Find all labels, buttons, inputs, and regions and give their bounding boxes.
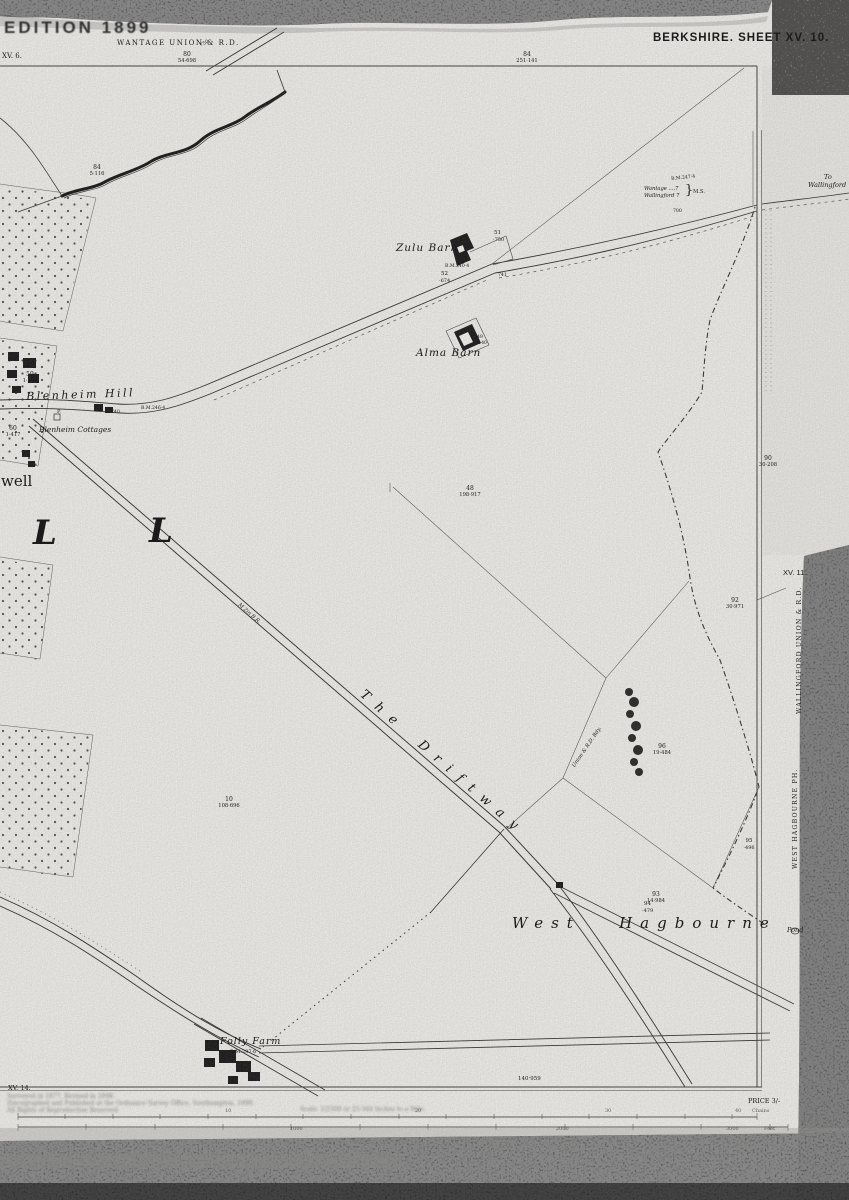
parcel-94-number: 94	[644, 902, 651, 908]
imprint-line-3: All Rights of Reproduction Reserved.	[7, 1108, 120, 1114]
parcel-52-number: 52	[441, 272, 448, 278]
west-hagbourne-ph-vertical: WEST HAGBOURNE PH.	[793, 768, 799, 869]
scale-feet-unit: Feet	[764, 1127, 775, 1132]
edition-label: EDITION 1899	[4, 19, 152, 36]
adjacent-sheet-xv11: XV. 11.	[783, 569, 806, 577]
wantage-union-label: WANTAGE UNION & R.D.	[117, 40, 240, 47]
parcel-95-number: 95	[746, 839, 753, 845]
scale-chains-40: 40	[735, 1109, 741, 1114]
parcel-51-number: 51	[494, 231, 501, 237]
pond-label: Pond	[787, 927, 803, 934]
blenheim-cottages-label: Blenheim Cottages	[39, 426, 111, 434]
scale-chains-unit: Chains	[752, 1109, 769, 1114]
bm-297-6: B.M.297·6	[230, 1050, 256, 1055]
milestone-label: M.S.	[693, 190, 705, 195]
parcel-49-area: ·140	[477, 342, 487, 346]
map-labels: EDITION 1899WANTAGE UNION & R.D.XV. 6.BE…	[0, 0, 849, 1200]
folly-farm-label: Folly Farm	[220, 1037, 281, 1047]
price-label: PRICE 3/-	[748, 1098, 780, 1105]
well-name-fragment: well	[1, 474, 32, 489]
scale-feet-1000: 1000	[290, 1127, 303, 1132]
scale-chains-30: 30	[605, 1109, 611, 1114]
to-wallingford-line2: Wallingford	[808, 182, 846, 189]
ms-destination-2: Wallingford 7	[644, 194, 679, 199]
parcel-84-area: 251·141	[516, 59, 537, 64]
boundary-annotation: Union & R.D. Bdy.	[572, 727, 603, 769]
pump-label: P.	[57, 410, 61, 415]
scale-chains-20: 20	[415, 1109, 421, 1114]
scale-feet-2000: 2000	[556, 1127, 569, 1132]
parcel-84w-area: 5·116	[90, 172, 105, 177]
level-700: 700	[673, 210, 682, 215]
adjacent-sheet-xv14: XV. 14.	[8, 1085, 31, 1092]
level-740: 740	[111, 411, 120, 416]
level-741: 741	[498, 274, 507, 279]
parcel-95-area: ·496	[743, 846, 754, 851]
parcel-10-area: 108·696	[218, 804, 239, 809]
bm-240-4: B.M.240·4	[445, 265, 469, 270]
parcel-48-area: 198·917	[459, 493, 480, 498]
acreage-total: 140·959	[518, 1077, 541, 1083]
driftway-label: T h e D r i f t w a y	[357, 688, 522, 834]
scale-chains-10: 10	[225, 1109, 231, 1114]
bridle-road-annotation: M 2in B.R.	[237, 603, 261, 625]
blenheim-hill-label: Blenheim Hill	[26, 387, 135, 402]
parcel-80-area: 54·698	[178, 59, 196, 64]
adjacent-sheet-xv6: XV. 6.	[2, 53, 22, 60]
parcel-51-area: ·750	[493, 238, 504, 243]
spot-height-750: 750	[200, 40, 210, 49]
scanned-map-sheet: EDITION 1899WANTAGE UNION & R.D.XV. 6.BE…	[0, 0, 849, 1200]
scale-feet-3000: 3000	[726, 1127, 739, 1132]
district-letter-l1: L	[33, 516, 57, 550]
district-letter-l2: L	[149, 514, 173, 548]
wallingford-union-vertical: WALLINGFORD UNION & R.D.	[797, 586, 803, 714]
bm-246-4: B.M.246·4	[141, 407, 165, 412]
zulu-barn-label: Zulu Barn	[396, 243, 458, 254]
sheet-title: BERKSHIRE. SHEET XV. 10.	[653, 33, 829, 45]
bm-247-4: B.M.247·4	[671, 175, 696, 182]
alma-barn-label: Alma Barn	[416, 348, 481, 359]
to-wallingford-line1: To	[824, 174, 832, 181]
scale-caption: Scale: 1/2500 or 25·344 Inches to a Mile…	[300, 1107, 426, 1113]
parcel-52-area: ·674	[439, 279, 450, 284]
west-hagbourne-name: West Hagbourne	[512, 916, 777, 931]
parcel-90-area: 30·208	[759, 463, 777, 468]
parcel-59-area: 1·204	[23, 379, 38, 384]
parcel-92-area: 30·971	[726, 605, 744, 610]
parcel-60-area: 1·417	[6, 433, 21, 438]
parcel-96-area: 19·484	[653, 751, 671, 756]
parcel-49-number: 49	[477, 336, 483, 341]
ms-destination-1: Wantage ....7	[644, 187, 678, 192]
